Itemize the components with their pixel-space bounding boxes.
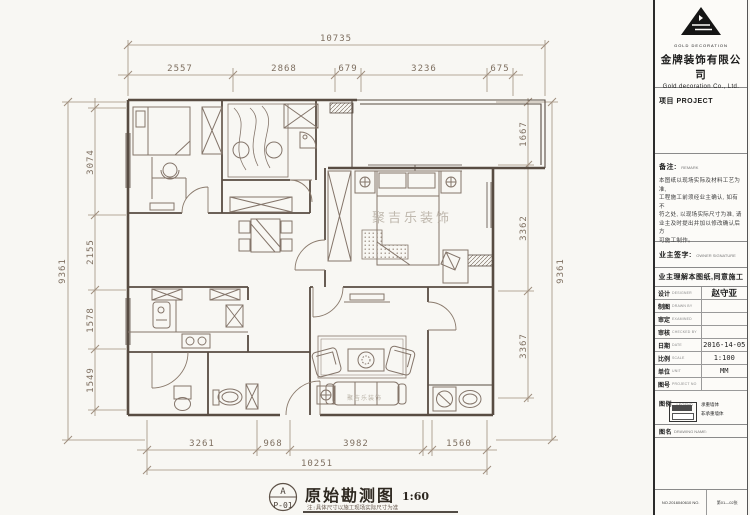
svg-text:1560: 1560	[446, 439, 472, 449]
project-section: 项目 PROJECT	[655, 88, 747, 154]
remark-section: 备注: REMARK 本图纸以现场实际及材料工艺为准, 工程施工前须经业主确认,…	[655, 154, 747, 242]
company-logo-icon	[679, 5, 723, 37]
dining-table-chairs	[239, 219, 292, 252]
walls	[126, 100, 545, 415]
svg-text:2557: 2557	[167, 64, 193, 74]
svg-text:675: 675	[490, 64, 509, 74]
legend-swatch-bearing-wall	[672, 405, 692, 411]
table-row-designer: 设计DESIGNER 赵守亚	[655, 287, 747, 300]
remark-notes: 本图纸以现场实际及材料工艺为准, 工程施工前须经业主确认, 如有不 符之处, 以…	[659, 177, 743, 245]
svg-text:9361: 9361	[58, 258, 68, 284]
drawing-name-blank-area	[655, 438, 747, 490]
table-row-drawn: 制图DRAWN BY	[655, 300, 747, 313]
unit-value: MM	[701, 365, 747, 377]
footer-left: NO.2016040610 NO.	[655, 490, 707, 515]
owner-statement: 业主理解本图纸,同意施工	[655, 268, 747, 287]
svg-text:3236: 3236	[411, 64, 437, 74]
bedroom-rug	[362, 230, 408, 259]
svg-text:968: 968	[263, 439, 282, 449]
title-block: GOLD DECORATION 金牌装饰有限公司 Gold decoration…	[653, 0, 748, 515]
drawing-title-group: A P-01 原始勘测图 1:60 注:具体尺寸以施工现场实际尺寸为准	[270, 484, 459, 513]
table-row-unit: 单位UNIT MM	[655, 365, 747, 378]
armchair-left	[311, 347, 342, 378]
title-block-footer: NO.2016040610 NO. 第01—02张	[655, 490, 747, 515]
drawing-scale: 1:60	[402, 490, 429, 503]
svg-text:2155: 2155	[86, 239, 96, 265]
svg-text:3367: 3367	[519, 333, 529, 359]
company-name-cn: 金牌装饰有限公司	[659, 52, 743, 82]
date-value: 2016-14-05	[701, 339, 747, 351]
table-row-projectno: 图号PROJECT NO	[655, 378, 747, 391]
legend-swatch-nonbearing-wall	[672, 413, 694, 420]
table-row-date: 日期DATE 2016-14-05	[655, 339, 747, 352]
bath-1	[174, 384, 258, 411]
tv-cabinet	[344, 294, 390, 302]
svg-text:1549: 1549	[86, 367, 96, 393]
logo-caption: GOLD DECORATION	[659, 43, 743, 48]
drawing-note: 注:具体尺寸以施工现场实际尺寸为准	[307, 504, 399, 512]
legend-item-labels: 承重墙体 非承重墙体	[701, 400, 724, 419]
study-bed	[133, 107, 190, 155]
bathroom-top	[228, 104, 318, 177]
bedroom-bench	[441, 250, 468, 283]
company-header: GOLD DECORATION 金牌装饰有限公司 Gold decoration…	[655, 0, 747, 88]
watermark-text-small: 聚吉乐装饰	[347, 394, 382, 402]
sideboard	[230, 197, 292, 212]
screenshot-root: 10735 2557 2868 679 3236 675 9361 3074 2…	[0, 0, 750, 515]
svg-text:1667: 1667	[519, 121, 529, 147]
remark-sub: REMARK	[681, 165, 698, 170]
svg-text:3074: 3074	[86, 149, 96, 175]
legend-section: 图例 LEGEND 承重墙体 非承重墙体	[655, 391, 747, 425]
info-table: 设计DESIGNER 赵守亚 制图DRAWN BY 审定EXAMINED 审核C…	[655, 287, 747, 391]
watermark-text: 聚吉乐装饰	[372, 211, 452, 226]
table-row-scale: 比例SCALE 1:100	[655, 352, 747, 365]
dim-bottom-total: 10251	[301, 459, 333, 469]
sheet-letter: A	[280, 487, 286, 497]
toilet-2	[459, 391, 481, 408]
study-desk-chair	[150, 157, 186, 210]
drawing-name-row: 图名 DRAWING NAME:	[655, 425, 747, 438]
kitchen	[128, 289, 248, 348]
wardrobe-master	[328, 171, 351, 261]
owner-signature-sub: OWNER SIGNATURE	[696, 253, 735, 258]
coffee-table-plant	[348, 349, 384, 371]
drawing-title: 原始勘测图	[305, 486, 395, 505]
owner-signature-section: 业主签字: OWNER SIGNATURE	[655, 242, 747, 268]
table-row-checked: 审核CHECKED BY	[655, 326, 747, 339]
svg-text:679: 679	[338, 64, 357, 74]
svg-text:3261: 3261	[189, 439, 215, 449]
owner-signature-label: 业主签字:	[659, 252, 692, 259]
designer-name: 赵守亚	[701, 287, 747, 299]
armchair-right	[385, 345, 416, 376]
remark-label: 备注:	[659, 164, 677, 171]
project-label: 项目 PROJECT	[659, 98, 713, 105]
sheet-number: P-01	[273, 501, 292, 510]
svg-text:1578: 1578	[86, 307, 96, 333]
wardrobe-study	[202, 107, 222, 154]
svg-text:9361: 9361	[556, 258, 566, 284]
floor-plan-drawing: 10735 2557 2868 679 3236 675 9361 3074 2…	[0, 0, 655, 515]
svg-text:3982: 3982	[343, 439, 369, 449]
scale-value: 1:100	[701, 352, 747, 364]
svg-text:2868: 2868	[271, 64, 297, 74]
svg-text:3362: 3362	[519, 215, 529, 241]
table-row-examined: 审定EXAMINED	[655, 313, 747, 326]
footer-right: 第01—02张	[707, 490, 747, 515]
dim-top-total: 10735	[320, 34, 352, 44]
washing-machine	[433, 387, 456, 411]
legend-swatches	[669, 402, 697, 422]
